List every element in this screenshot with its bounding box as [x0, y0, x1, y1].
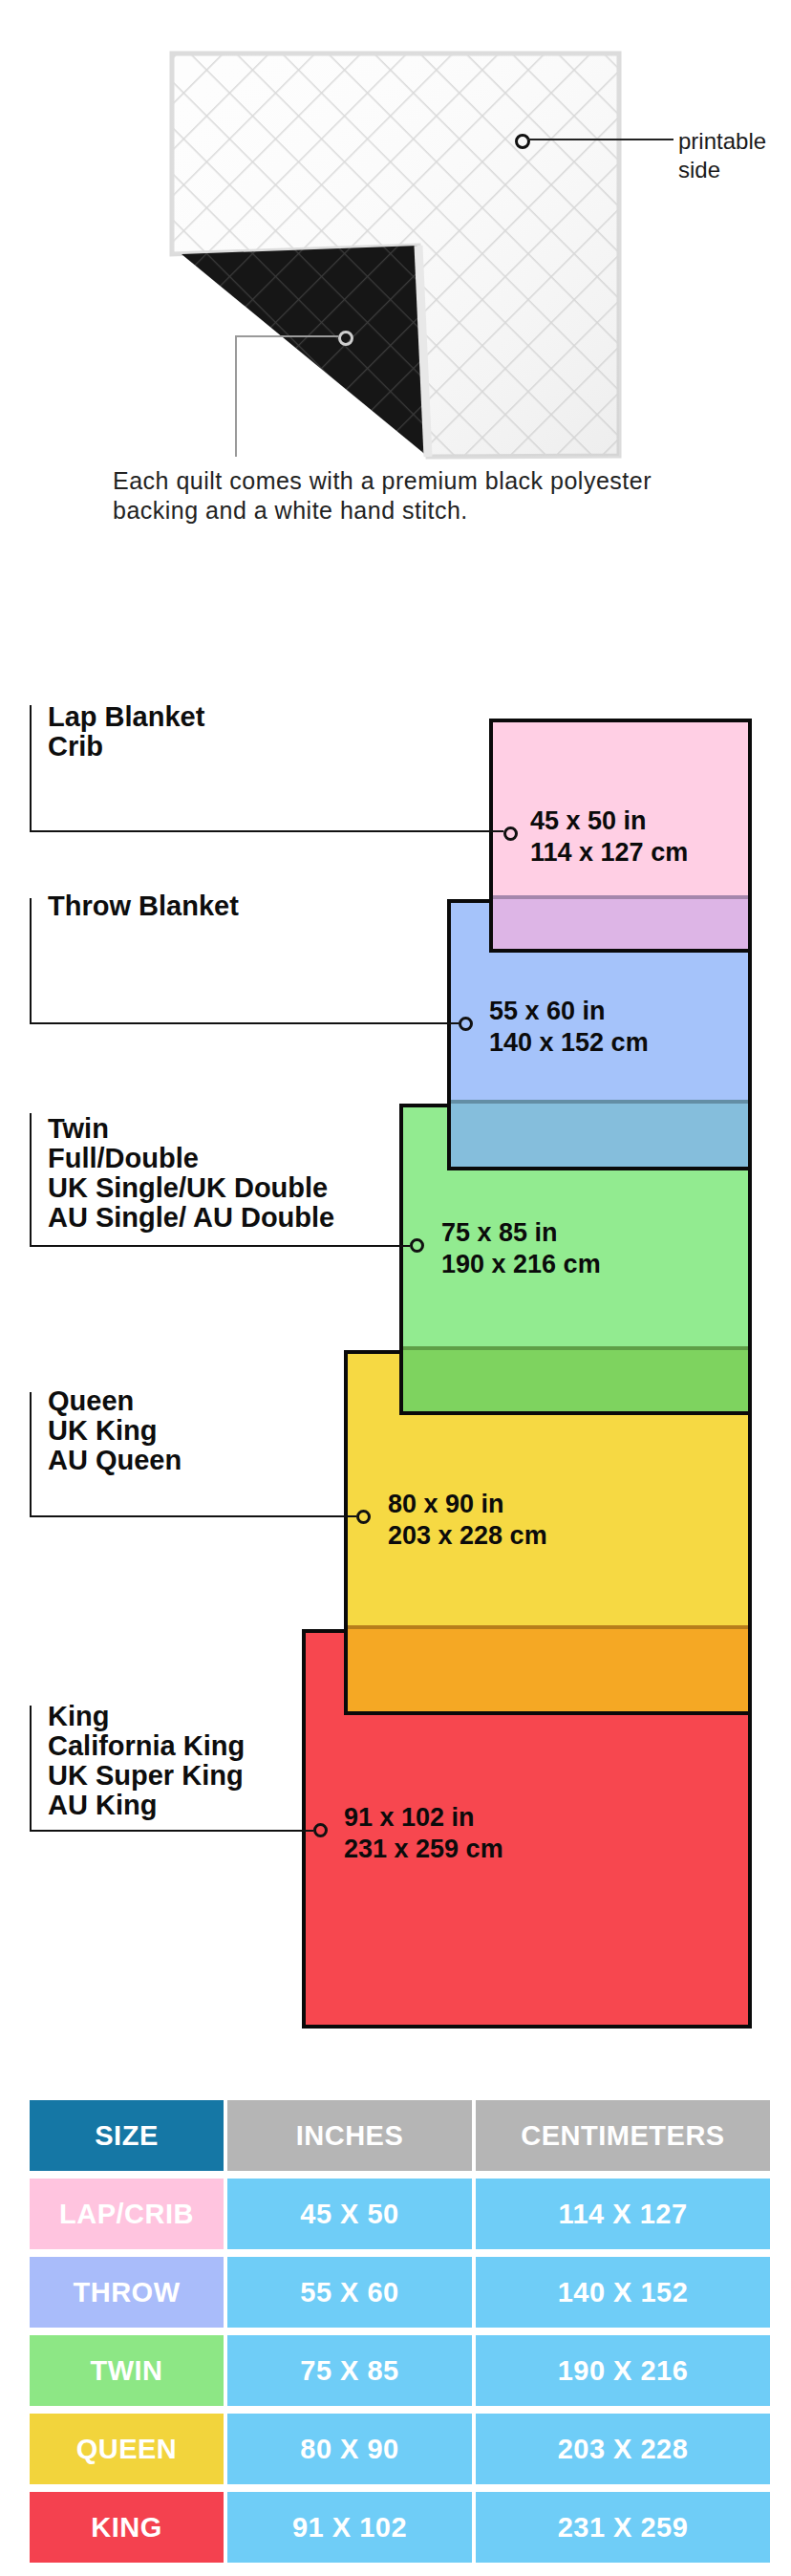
bracket-throw-h — [30, 1022, 459, 1024]
printable-side-marker — [515, 134, 530, 149]
table-row-queen-label: QUEEN — [30, 2414, 224, 2484]
table-row-throw-cm: 140 X 152 — [476, 2257, 770, 2328]
black-backing-marker — [338, 331, 353, 346]
bracket-king-h — [30, 1830, 313, 1832]
label-lap-crib: Lap Blanket Crib — [48, 702, 204, 762]
table-row-lap-inches: 45 X 50 — [227, 2179, 472, 2249]
size-text-throw: 55 x 60 in 140 x 152 cm — [489, 996, 649, 1059]
bracket-queen — [30, 1392, 32, 1517]
ring-throw — [459, 1017, 473, 1031]
overlap-twin-over-queen — [403, 1346, 748, 1411]
overlap-throw-over-twin — [451, 1100, 748, 1167]
ring-king — [313, 1823, 328, 1837]
quilt-size-infographic: printable side Each quilt comes with a p… — [0, 0, 791, 2576]
bracket-twin — [30, 1113, 32, 1247]
ring-twin — [410, 1238, 424, 1253]
size-cm: 114 x 127 cm — [530, 837, 688, 869]
bracket-queen-h — [30, 1515, 356, 1517]
table-row-throw-label: THROW — [30, 2257, 224, 2328]
label-line: Queen — [48, 1386, 182, 1416]
bracket-lap — [30, 705, 32, 832]
size-in: 80 x 90 in — [388, 1489, 547, 1520]
size-text-queen: 80 x 90 in 203 x 228 cm — [388, 1489, 547, 1552]
size-in: 75 x 85 in — [441, 1217, 601, 1249]
label-line: UK Super King — [48, 1761, 245, 1791]
table-row-king-inches: 91 X 102 — [227, 2492, 472, 2563]
label-line: UK King — [48, 1416, 182, 1446]
label-line: Throw Blanket — [48, 891, 239, 921]
size-cm: 203 x 228 cm — [388, 1520, 547, 1552]
ring-lap — [503, 826, 518, 841]
label-line: UK Single/UK Double — [48, 1173, 334, 1203]
label-line: California King — [48, 1731, 245, 1761]
label-line: AU Single/ AU Double — [48, 1203, 334, 1233]
bracket-king — [30, 1706, 32, 1832]
size-cm: 140 x 152 cm — [489, 1027, 649, 1059]
bracket-throw — [30, 898, 32, 1024]
table-row-queen-cm: 203 X 228 — [476, 2414, 770, 2484]
table-header-inches: INCHES — [227, 2100, 472, 2171]
bracket-twin-h — [30, 1245, 410, 1247]
label-line: Crib — [48, 732, 204, 762]
label-line: King — [48, 1702, 245, 1731]
size-cm: 231 x 259 cm — [344, 1834, 503, 1865]
quilt-illustration — [0, 0, 791, 506]
table-row-twin-cm: 190 X 216 — [476, 2335, 770, 2406]
label-line: AU King — [48, 1791, 245, 1820]
size-cm: 190 x 216 cm — [441, 1249, 601, 1280]
size-in: 45 x 50 in — [530, 805, 688, 837]
table-header-size: SIZE — [30, 2100, 224, 2171]
table-row-queen-inches: 80 X 90 — [227, 2414, 472, 2484]
size-in: 91 x 102 in — [344, 1802, 503, 1834]
quilt-caption: Each quilt comes with a premium black po… — [113, 466, 652, 526]
printable-side-callout-line — [527, 139, 673, 140]
table-row-throw-inches: 55 X 60 — [227, 2257, 472, 2328]
table-header-centimeters: CENTIMETERS — [476, 2100, 770, 2171]
printable-side-label: printable side — [678, 127, 766, 184]
table-row-lap-cm: 114 X 127 — [476, 2179, 770, 2249]
label-twin: Twin Full/Double UK Single/UK Double AU … — [48, 1114, 334, 1233]
overlap-queen-over-king — [348, 1625, 748, 1711]
table-row-king-label: KING — [30, 2492, 224, 2563]
label-line: Twin — [48, 1114, 334, 1144]
quilt-caption-line1: Each quilt comes with a premium black po… — [113, 466, 652, 496]
quilt-back-corner — [182, 246, 428, 457]
bracket-lap-h — [30, 830, 503, 832]
table-row-twin-inches: 75 X 85 — [227, 2335, 472, 2406]
quilt-caption-line2: backing and a white hand stitch. — [113, 496, 652, 526]
overlap-lap-over-throw — [493, 895, 748, 949]
label-line: AU Queen — [48, 1446, 182, 1475]
size-text-king: 91 x 102 in 231 x 259 cm — [344, 1802, 503, 1865]
size-in: 55 x 60 in — [489, 996, 649, 1027]
printable-side-label-line1: printable — [678, 127, 766, 156]
label-throw: Throw Blanket — [48, 891, 239, 921]
printable-side-label-line2: side — [678, 156, 766, 184]
ring-queen — [356, 1510, 371, 1524]
size-text-lap: 45 x 50 in 114 x 127 cm — [530, 805, 688, 869]
size-text-twin: 75 x 85 in 190 x 216 cm — [441, 1217, 601, 1280]
table-row-king-cm: 231 X 259 — [476, 2492, 770, 2563]
table-row-twin-label: TWIN — [30, 2335, 224, 2406]
table-row-lap-label: LAP/CRIB — [30, 2179, 224, 2249]
label-line: Full/Double — [48, 1144, 334, 1173]
label-queen: Queen UK King AU Queen — [48, 1386, 182, 1475]
label-line: Lap Blanket — [48, 702, 204, 732]
label-king: King California King UK Super King AU Ki… — [48, 1702, 245, 1820]
